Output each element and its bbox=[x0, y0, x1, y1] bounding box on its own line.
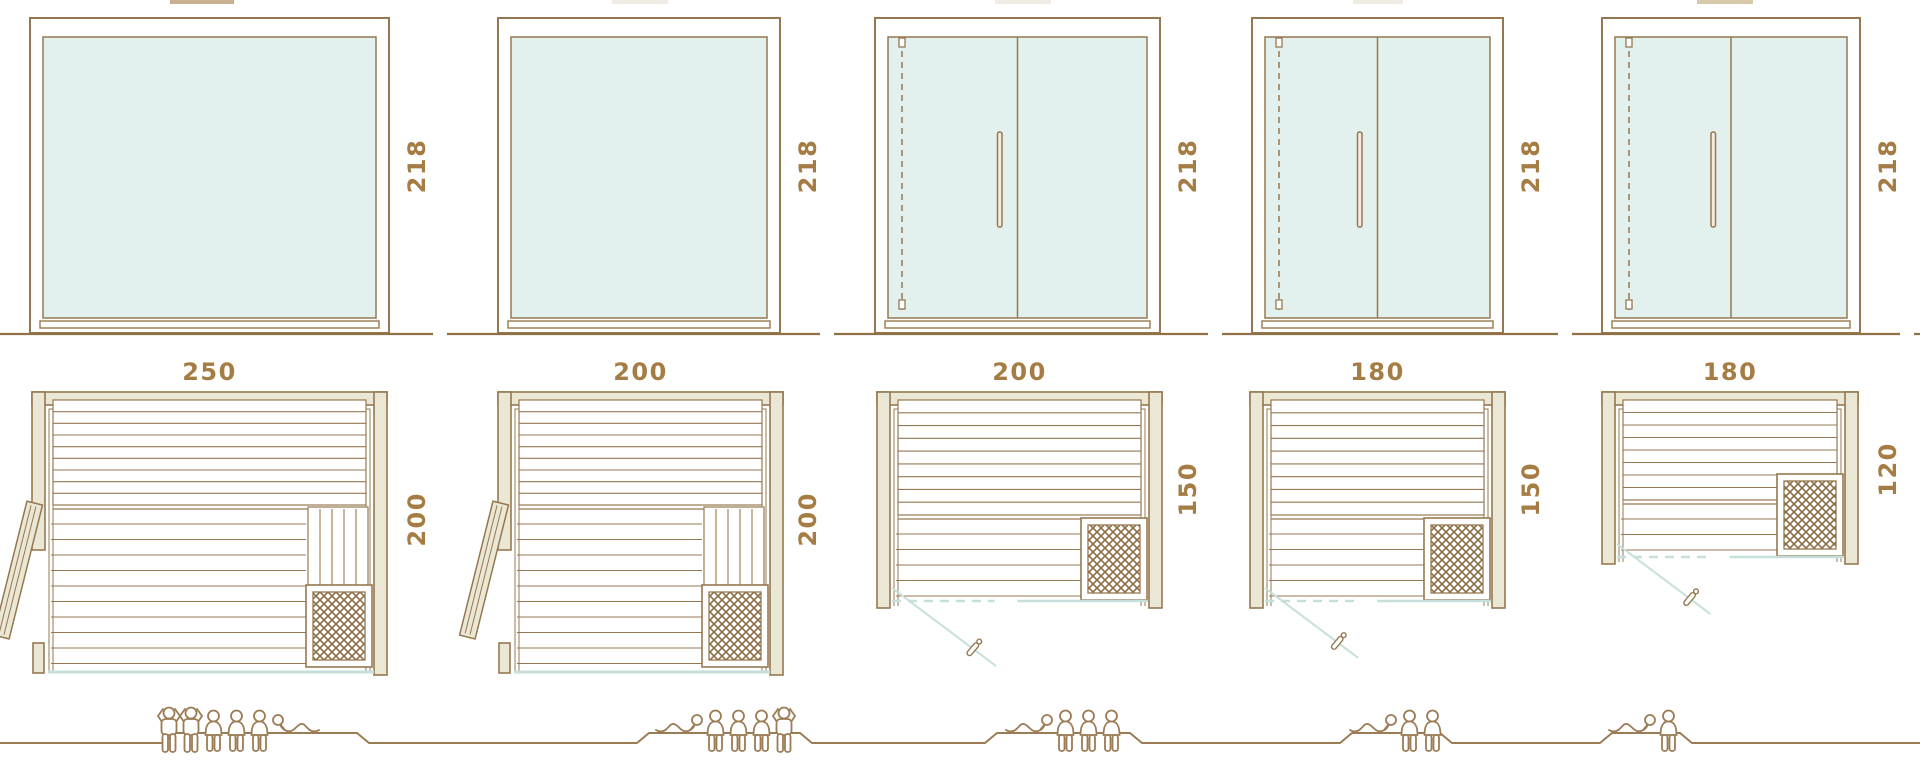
elevation-front-view bbox=[1602, 18, 1860, 333]
wood-door-leaf-open bbox=[460, 501, 509, 639]
floor-plan-view bbox=[1602, 392, 1858, 614]
elevation-sill bbox=[508, 321, 770, 328]
sauna-column-4: 180218150 bbox=[1250, 0, 1545, 658]
person-seated-icon bbox=[229, 711, 245, 752]
floor-plan-view bbox=[0, 392, 387, 675]
person-lying-icon bbox=[1006, 715, 1052, 731]
wood-door-leaf-open bbox=[0, 501, 42, 639]
wall-left bbox=[877, 392, 890, 608]
lower-bench-slats bbox=[896, 534, 1081, 596]
height-dimension-label: 218 bbox=[1517, 139, 1545, 194]
glass-panel bbox=[511, 37, 767, 318]
elevation-front-view bbox=[1252, 18, 1503, 333]
roof-vent-partial bbox=[1353, 0, 1403, 4]
glass-door-swing-line bbox=[1265, 588, 1358, 658]
heater-icon bbox=[306, 585, 372, 667]
person-lying-icon bbox=[273, 715, 319, 731]
wall-right bbox=[1149, 392, 1162, 608]
door-handle-icon bbox=[998, 132, 1003, 227]
glass-door-swing-line bbox=[1617, 544, 1710, 614]
upper-bench-slats bbox=[898, 400, 1141, 519]
wall-left bbox=[1602, 392, 1615, 564]
person-seated-icon bbox=[731, 711, 747, 752]
upper-bench-slats bbox=[519, 400, 762, 509]
width-dimension-label: 200 bbox=[992, 358, 1047, 386]
heater-icon bbox=[702, 585, 768, 667]
roof-vent-partial bbox=[612, 0, 668, 4]
depth-dimension-label: 120 bbox=[1874, 442, 1902, 497]
person-seated-icon bbox=[1104, 711, 1120, 752]
lower-bench-slats bbox=[517, 524, 702, 664]
depth-dimension-label: 150 bbox=[1174, 462, 1202, 517]
sauna-sizes-diagram: 2502182002002182002002181501802181501802… bbox=[0, 0, 1920, 770]
width-dimension-label: 180 bbox=[1703, 358, 1758, 386]
person-lying-icon bbox=[656, 715, 702, 731]
person-seated-icon bbox=[708, 711, 724, 752]
upper-bench-slats bbox=[53, 400, 366, 509]
elevation-front-view bbox=[875, 18, 1160, 333]
hinge-top-icon bbox=[899, 38, 905, 47]
person-seated-icon bbox=[754, 711, 770, 752]
elevation-front-view bbox=[498, 18, 780, 333]
width-dimension-label: 200 bbox=[613, 358, 668, 386]
hinge-bottom-icon bbox=[1626, 300, 1632, 309]
heater-icon bbox=[1777, 474, 1843, 556]
wall-right bbox=[770, 392, 783, 675]
roof-vent-partial bbox=[995, 0, 1051, 4]
glass-panel bbox=[43, 37, 376, 318]
floor-plan-view bbox=[460, 392, 783, 675]
sauna-column-2: 200218200 bbox=[460, 0, 822, 675]
height-dimension-label: 218 bbox=[403, 139, 431, 194]
hinge-bottom-icon bbox=[899, 300, 905, 309]
capacity-figures-group-2 bbox=[656, 708, 795, 753]
person-lying-icon bbox=[1609, 715, 1655, 731]
lower-bench-slats bbox=[51, 524, 306, 664]
ground-line bbox=[0, 733, 1920, 743]
door-jamb bbox=[33, 643, 44, 673]
person-seated-icon bbox=[252, 711, 268, 752]
person-seated-icon bbox=[1058, 711, 1074, 752]
person-standing-icon bbox=[180, 708, 202, 753]
depth-dimension-label: 200 bbox=[794, 492, 822, 547]
door-jamb bbox=[499, 643, 510, 673]
floor-plan-view bbox=[877, 392, 1162, 666]
capacity-figures-group-4 bbox=[1350, 711, 1441, 752]
roof-vent-partial bbox=[1697, 0, 1753, 4]
floor-plan-view bbox=[1250, 392, 1505, 658]
elevation-sill bbox=[40, 321, 379, 328]
wall-right bbox=[1845, 392, 1858, 564]
heater-icon bbox=[1424, 518, 1490, 600]
person-seated-icon bbox=[206, 711, 222, 752]
capacity-figures-group-5 bbox=[1609, 711, 1677, 752]
diagram-canvas: 2502182002002182002002181501802181501802… bbox=[0, 0, 1920, 770]
heater-icon bbox=[1081, 518, 1147, 600]
person-standing-icon bbox=[773, 708, 795, 753]
door-handle-icon bbox=[1711, 132, 1716, 227]
depth-dimension-label: 200 bbox=[403, 492, 431, 547]
person-lying-icon bbox=[1350, 715, 1396, 731]
person-seated-icon bbox=[1425, 711, 1441, 752]
elevation-sill bbox=[1262, 321, 1493, 328]
height-dimension-label: 218 bbox=[1174, 139, 1202, 194]
person-seated-icon bbox=[1081, 711, 1097, 752]
hinge-top-icon bbox=[1626, 38, 1632, 47]
height-dimension-label: 218 bbox=[1874, 139, 1902, 194]
capacity-figures-group-1 bbox=[158, 708, 319, 753]
lower-bench-slats bbox=[1621, 519, 1777, 550]
height-dimension-label: 218 bbox=[794, 139, 822, 194]
width-dimension-label: 250 bbox=[182, 358, 237, 386]
wall-right bbox=[374, 392, 387, 675]
lower-bench-slats bbox=[1269, 534, 1424, 596]
wall-right bbox=[1492, 392, 1505, 608]
hinge-bottom-icon bbox=[1276, 300, 1282, 309]
person-standing-icon bbox=[158, 708, 180, 753]
hinge-top-icon bbox=[1276, 38, 1282, 47]
upper-bench-slats bbox=[1271, 400, 1484, 519]
depth-dimension-label: 150 bbox=[1517, 462, 1545, 517]
door-handle-icon bbox=[1358, 132, 1363, 227]
wall-left bbox=[1250, 392, 1263, 608]
elevation-sill bbox=[1612, 321, 1850, 328]
width-dimension-label: 180 bbox=[1350, 358, 1405, 386]
sauna-column-1: 250218200 bbox=[0, 0, 431, 675]
elevation-sill bbox=[885, 321, 1150, 328]
elevation-front-view bbox=[30, 18, 389, 333]
roof-vent-partial bbox=[170, 0, 234, 4]
sauna-column-5: 180218120 bbox=[1602, 0, 1902, 614]
person-seated-icon bbox=[1661, 711, 1677, 752]
person-seated-icon bbox=[1402, 711, 1418, 752]
capacity-figures-group-3 bbox=[1006, 711, 1120, 752]
